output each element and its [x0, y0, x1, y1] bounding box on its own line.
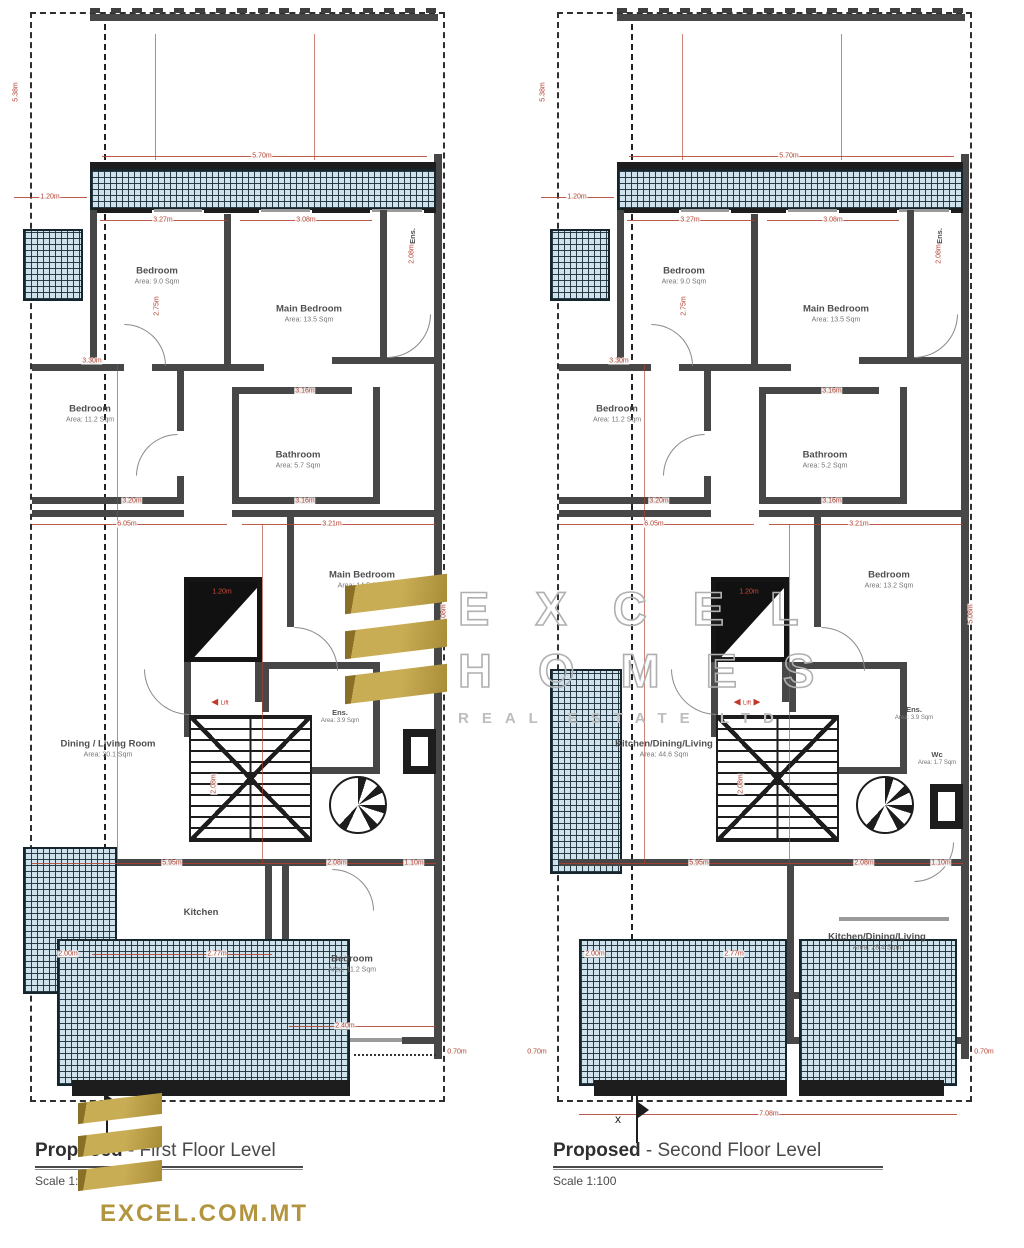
stair-run: [189, 715, 312, 842]
wall: [559, 497, 711, 504]
room-label: Bedroom Area: 9.0 Sqm: [135, 265, 180, 286]
excel-homes-logo-small: [78, 1098, 162, 1186]
second-floor-title: Proposed - Second Floor Level: [553, 1140, 821, 1162]
wall: [287, 517, 294, 627]
terrace-front-wall: [594, 1080, 787, 1096]
dimension-label: 2.08m: [409, 243, 416, 264]
dimension-label: 3.16m: [821, 498, 842, 505]
room-label: Kitchen: [184, 907, 219, 919]
terrace-hatch: [57, 939, 350, 1086]
terrace-hatch: [579, 939, 787, 1086]
terrace-parapet: [839, 917, 949, 921]
door-arc: [136, 434, 178, 476]
floor-plan-sheet: 5.70m 1.20m 3.27m 3.08m 3.30m 3.20m 3.16…: [0, 0, 1024, 1248]
room-label: Bedroom Area: 11.2 Sqm: [593, 403, 641, 424]
room-label: Kitchen/Dining/Living Area: 28.4 Sqm: [828, 931, 926, 952]
dimension-label: 1.20m: [566, 194, 587, 201]
wall: [32, 497, 184, 504]
door-arc: [914, 314, 958, 358]
dimension-label: 6.05m: [643, 521, 664, 528]
dimension-label: 3.30m: [81, 358, 102, 365]
extension-line: [682, 34, 683, 160]
extension-line: [314, 34, 315, 160]
dimension-label: 1.20m: [39, 194, 60, 201]
dimension-label: 2.75m: [154, 295, 161, 316]
wall: [177, 371, 184, 431]
door-arc: [294, 627, 338, 671]
dimension-label: 0.70m: [973, 1049, 994, 1056]
logo-bar: [78, 1093, 162, 1124]
balcony-sill: [839, 208, 897, 213]
door-sill: [261, 209, 310, 212]
wall: [559, 364, 651, 371]
dimension-label: 3.08m: [822, 217, 843, 224]
wall: [152, 364, 264, 371]
dimension-label: 2.08m: [853, 860, 874, 867]
door-arc: [663, 434, 705, 476]
shaft-hatch: [23, 229, 83, 301]
dimension-line: [32, 863, 436, 864]
door-sill: [154, 209, 202, 212]
room-label: Ens. Area: 3.9 Sqm: [321, 708, 359, 726]
wall: [787, 866, 794, 1044]
shaft-hatch: [550, 229, 610, 301]
party-wall-ticks: [617, 8, 965, 13]
wall: [559, 510, 711, 517]
dimension-label: 3.16m: [821, 388, 842, 395]
wall: [759, 387, 879, 394]
section-marker-flag: [638, 1102, 649, 1118]
room-label: Wc Area: 1.7 Sqm: [918, 750, 956, 768]
website-link[interactable]: EXCEL.COM.MT: [100, 1200, 308, 1228]
door-arc: [124, 324, 166, 366]
dimension-label: 2.40m: [334, 1023, 355, 1030]
wall: [617, 210, 624, 370]
door-arc: [821, 627, 865, 671]
room-label: Ens.: [935, 228, 945, 244]
logo-bar: [78, 1126, 162, 1157]
dimension-label: 2.00m: [584, 951, 605, 958]
party-wall: [617, 14, 965, 21]
room-label: Ens.: [408, 228, 418, 244]
dimension-label: 3.21m: [321, 521, 342, 528]
wall: [32, 510, 184, 517]
wall: [380, 210, 387, 360]
balcony-hatch: [617, 169, 963, 210]
balcony-sill: [424, 208, 436, 213]
extension-line: [789, 524, 790, 863]
dimension-label: 2.08m: [738, 773, 745, 794]
dimension-label: 3.27m: [152, 217, 173, 224]
wall: [255, 662, 262, 702]
room-label: Bathroom Area: 5.2 Sqm: [803, 449, 848, 470]
balcony-sill: [951, 208, 963, 213]
dimension-label: 2.77m: [206, 951, 227, 958]
stair-run: [716, 715, 839, 842]
excel-homes-logo: [345, 580, 447, 698]
room-label: Bedroom Area: 11.2 Sqm: [66, 403, 114, 424]
dimension-label: 0.70m: [446, 1049, 467, 1056]
wall: [679, 364, 791, 371]
balcony-sill: [312, 208, 370, 213]
wall: [759, 387, 766, 504]
dimension-label: 5.95m: [161, 860, 182, 867]
section-marker-x: x: [615, 1112, 621, 1126]
dimension-label: 5.95m: [688, 860, 709, 867]
wall: [907, 210, 914, 360]
logo-bar: [345, 574, 447, 615]
spiral-stair: [329, 776, 387, 834]
dimension-label: 6.05m: [116, 521, 137, 528]
lift-arrow-icon: ◀ Lift: [211, 697, 228, 708]
wall: [704, 371, 711, 431]
wall: [224, 214, 231, 364]
wall: [859, 357, 964, 364]
wc-fixture-basin: [938, 792, 955, 821]
dimension-label: 1.10m: [403, 860, 424, 867]
door-sill: [788, 209, 837, 212]
dimension-label: 5.38m: [540, 81, 547, 102]
wall: [32, 364, 124, 371]
dimension-label: 3.20m: [648, 498, 669, 505]
balcony-hatch: [90, 169, 436, 210]
room-label: Main Bedroom Area: 13.5 Sqm: [276, 303, 342, 324]
lift-arrow-icon: ◀ Lift ▶: [734, 697, 761, 708]
balcony-sill: [731, 208, 786, 213]
terrace-hatch: [799, 939, 957, 1086]
room-label: Dining / Living Room Area: 30.1 Sqm: [61, 738, 156, 759]
door-sill: [342, 1038, 402, 1042]
dimension-label: 2.75m: [681, 295, 688, 316]
dimension-label: 7.08m: [758, 1111, 779, 1118]
door-sill: [681, 209, 729, 212]
title-underline: [35, 1166, 303, 1170]
extension-line: [841, 34, 842, 160]
dimension-line: [289, 1026, 436, 1027]
dimension-label: 0.70m: [526, 1049, 547, 1056]
wall: [814, 517, 821, 627]
door-arc: [651, 324, 693, 366]
logo-bar: [78, 1160, 162, 1191]
dimension-line: [559, 863, 963, 864]
door-arc: [144, 669, 190, 715]
door-arc: [671, 669, 717, 715]
lightwell-hatch: [550, 669, 622, 874]
boundary-dotted: [354, 1054, 436, 1056]
wall: [332, 357, 437, 364]
wc-fixture-basin: [411, 737, 428, 766]
dimension-label: 2.08m: [211, 773, 218, 794]
wall: [232, 387, 352, 394]
wall: [782, 662, 789, 702]
door-arc: [332, 869, 374, 911]
door-arc: [387, 314, 431, 358]
logo-bar: [345, 619, 447, 660]
dimension-label: 5.38m: [13, 81, 20, 102]
room-label: Main Bedroom Area: 13.5 Sqm: [803, 303, 869, 324]
dimension-label: 3.08m: [295, 217, 316, 224]
extension-line: [644, 364, 645, 864]
extension-line: [117, 364, 118, 864]
room-label: Bedroom Area: 11.2 Sqm: [328, 953, 376, 974]
first-floor-plan: 5.70m 1.20m 3.27m 3.08m 3.30m 3.20m 3.16…: [30, 12, 445, 1102]
balcony-sill: [621, 208, 679, 213]
room-label: Kitchen/Dining/Living Area: 44.6 Sqm: [615, 738, 713, 759]
room-label: Ens. Area: 3.9 Sqm: [895, 705, 933, 723]
title-underline: [553, 1166, 883, 1170]
second-floor-scale: Scale 1:100: [553, 1174, 616, 1188]
dimension-label: 3.30m: [608, 358, 629, 365]
dimension-label: 1.20m: [211, 589, 232, 596]
room-label: Bedroom Area: 9.0 Sqm: [662, 265, 707, 286]
dimension-label: 2.08m: [326, 860, 347, 867]
wall: [751, 214, 758, 364]
wall: [90, 210, 97, 370]
balcony-sill: [94, 208, 152, 213]
balcony-sill: [204, 208, 259, 213]
wall: [232, 510, 436, 517]
dimension-label: 3.27m: [679, 217, 700, 224]
dimension-label: 3.16m: [294, 388, 315, 395]
dimension-label: 3.20m: [121, 498, 142, 505]
party-wall-ticks: [90, 8, 438, 13]
extension-line: [155, 34, 156, 160]
wall: [373, 387, 380, 504]
dimension-label: 1.10m: [930, 860, 951, 867]
wall: [789, 662, 796, 712]
spiral-stair: [856, 776, 914, 834]
dimension-label: 5.70m: [251, 153, 272, 160]
dimension-label: 2.77m: [723, 951, 744, 958]
dimension-label: 2.00m: [57, 951, 78, 958]
wall: [900, 387, 907, 504]
wall: [262, 662, 269, 712]
wall: [759, 510, 963, 517]
extension-line: [262, 524, 263, 863]
dimension-label: 5.08m: [968, 603, 975, 624]
room-label: Bedroom Area: 13.2 Sqm: [865, 569, 914, 590]
dimension-label: 3.21m: [848, 521, 869, 528]
wall: [402, 1037, 436, 1044]
wall: [232, 387, 239, 504]
terrace-front-wall: [799, 1080, 944, 1096]
terrace-front-wall: [72, 1080, 350, 1096]
dimension-label: 3.16m: [294, 498, 315, 505]
dimension-label: 2.08m: [936, 243, 943, 264]
dimension-line: [92, 954, 272, 955]
dimension-label: 1.20m: [738, 589, 759, 596]
room-label: Bathroom Area: 5.7 Sqm: [276, 449, 321, 470]
dimension-label: 5.70m: [778, 153, 799, 160]
second-floor-plan: 5.70m 1.20m 3.27m 3.08m 3.30m 3.20m 3.16…: [557, 12, 972, 1102]
party-wall: [90, 14, 438, 21]
